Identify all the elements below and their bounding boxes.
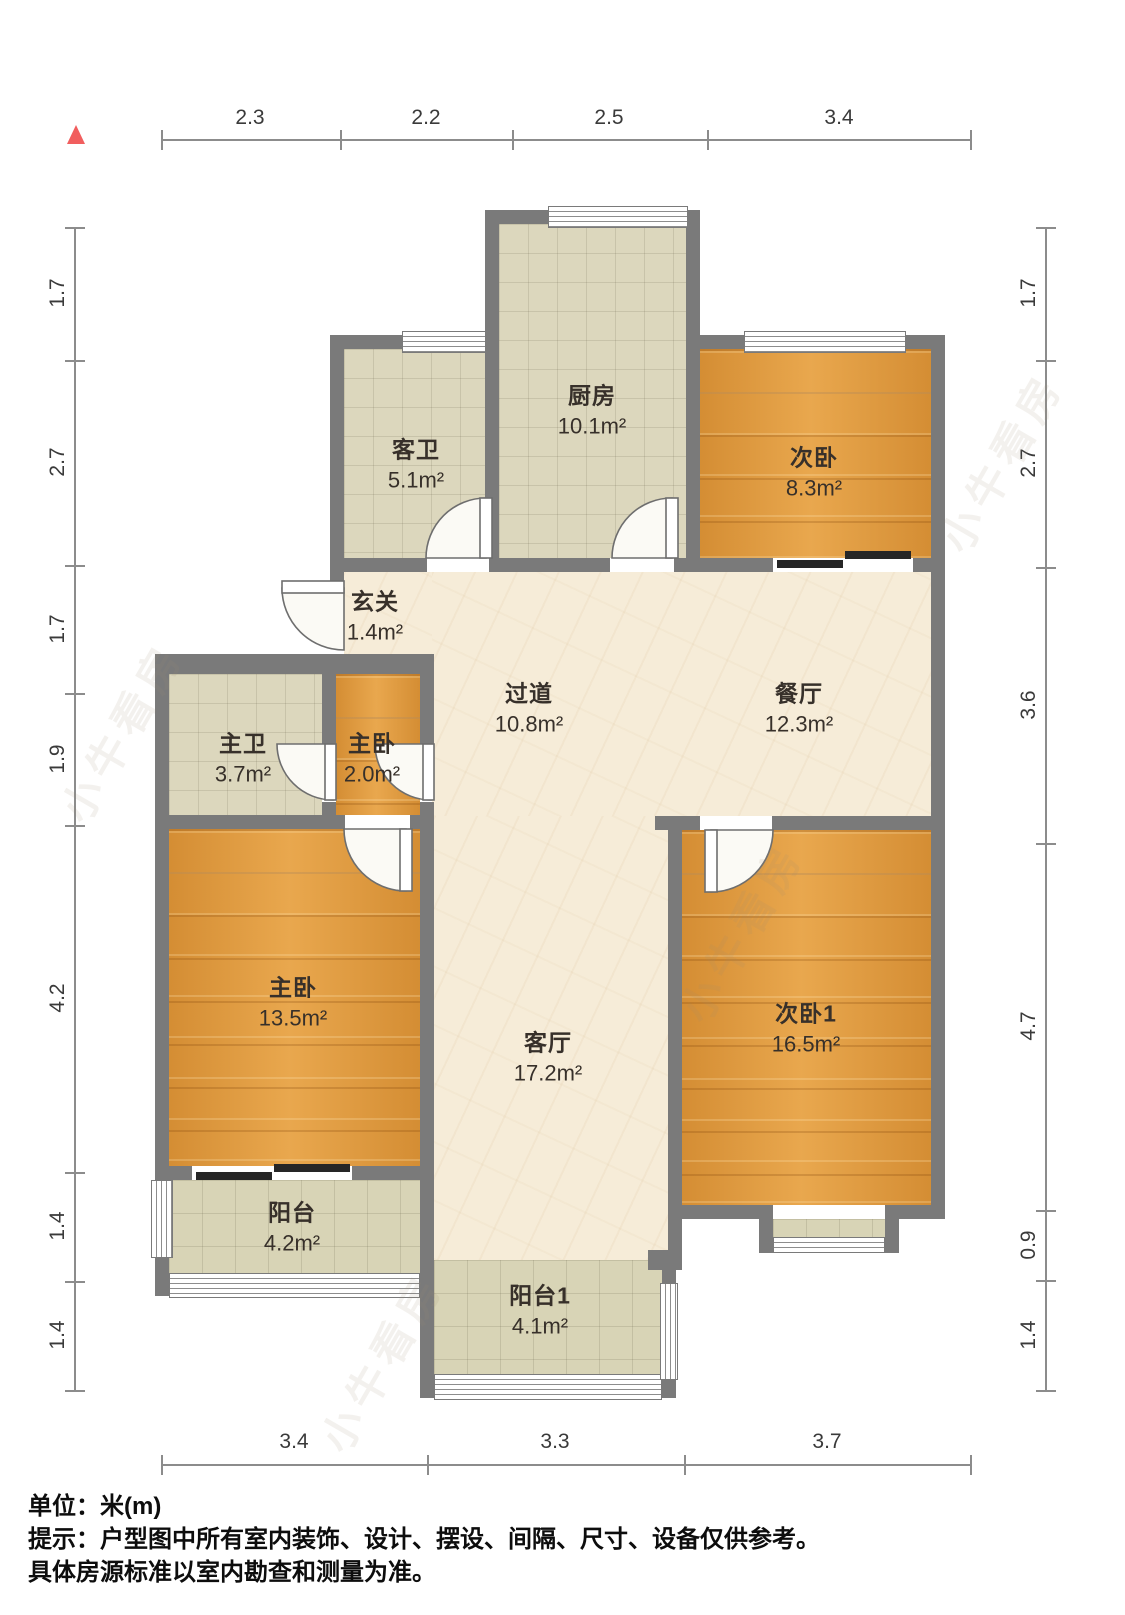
room-label-bedroom-2: 次卧 8.3m² bbox=[786, 439, 842, 502]
room-label-hallway: 过道 10.8m² bbox=[495, 675, 563, 738]
room-area: 12.3m² bbox=[765, 712, 833, 738]
master-bedroom-door-arc bbox=[344, 829, 406, 891]
room-label-kitchen: 厨房 10.1m² bbox=[558, 377, 626, 440]
room-name: 主卧 bbox=[344, 725, 400, 759]
room-label-master-closet: 主卧 2.0m² bbox=[344, 725, 400, 788]
room-area: 13.5m² bbox=[259, 1006, 327, 1032]
room-name: 客厅 bbox=[514, 1024, 582, 1058]
room-area: 10.1m² bbox=[558, 414, 626, 440]
room-label-balcony: 阳台 4.2m² bbox=[264, 1194, 320, 1257]
bedroom-1-door-arc bbox=[711, 830, 773, 892]
room-name: 厨房 bbox=[558, 377, 626, 411]
room-area: 1.4m² bbox=[347, 620, 403, 646]
kitchen-door-arc bbox=[612, 498, 672, 558]
room-name: 主卫 bbox=[215, 725, 271, 759]
room-name: 主卧 bbox=[259, 969, 327, 1003]
room-area: 8.3m² bbox=[786, 476, 842, 502]
room-area: 5.1m² bbox=[388, 468, 444, 494]
guest-bathroom-door-leaf bbox=[480, 498, 492, 558]
room-label-master-bathroom: 主卫 3.7m² bbox=[215, 725, 271, 788]
room-label-dining-room: 餐厅 12.3m² bbox=[765, 675, 833, 738]
room-area: 2.0m² bbox=[344, 762, 400, 788]
guest-bathroom-door-arc bbox=[426, 498, 486, 558]
room-area: 4.1m² bbox=[509, 1314, 571, 1340]
room-area: 4.2m² bbox=[264, 1231, 320, 1257]
floor-plan-canvas: 厨房 10.1m² 客卫 5.1m² 次卧 8.3m² 玄关 1.4m² 过道 … bbox=[0, 0, 1125, 1615]
entry-door-arc bbox=[282, 588, 344, 650]
room-name: 玄关 bbox=[347, 583, 403, 617]
kitchen-door-leaf bbox=[666, 498, 678, 558]
master-bedroom-door-leaf bbox=[400, 829, 412, 891]
room-label-guest-bathroom: 客卫 5.1m² bbox=[388, 431, 444, 494]
room-area: 3.7m² bbox=[215, 762, 271, 788]
room-name: 次卧 bbox=[786, 439, 842, 473]
entry-door-leaf bbox=[282, 581, 344, 593]
room-label-bedroom-1: 次卧1 16.5m² bbox=[772, 995, 840, 1058]
bedroom-1-door-leaf bbox=[705, 830, 717, 892]
room-label-entry-hall: 玄关 1.4m² bbox=[347, 583, 403, 646]
room-name: 阳台 bbox=[264, 1194, 320, 1228]
room-name: 阳台1 bbox=[509, 1277, 571, 1311]
master-bathroom-door-leaf bbox=[325, 744, 336, 800]
room-name: 次卧1 bbox=[772, 995, 840, 1029]
room-name: 客卫 bbox=[388, 431, 444, 465]
doors-layer bbox=[0, 0, 1125, 1615]
room-area: 16.5m² bbox=[772, 1032, 840, 1058]
room-name: 过道 bbox=[495, 675, 563, 709]
master-closet-door-leaf bbox=[423, 744, 434, 800]
room-area: 10.8m² bbox=[495, 712, 563, 738]
room-area: 17.2m² bbox=[514, 1061, 582, 1087]
room-name: 餐厅 bbox=[765, 675, 833, 709]
room-label-living-room: 客厅 17.2m² bbox=[514, 1024, 582, 1087]
room-label-master-bedroom: 主卧 13.5m² bbox=[259, 969, 327, 1032]
room-label-balcony-1: 阳台1 4.1m² bbox=[509, 1277, 571, 1340]
